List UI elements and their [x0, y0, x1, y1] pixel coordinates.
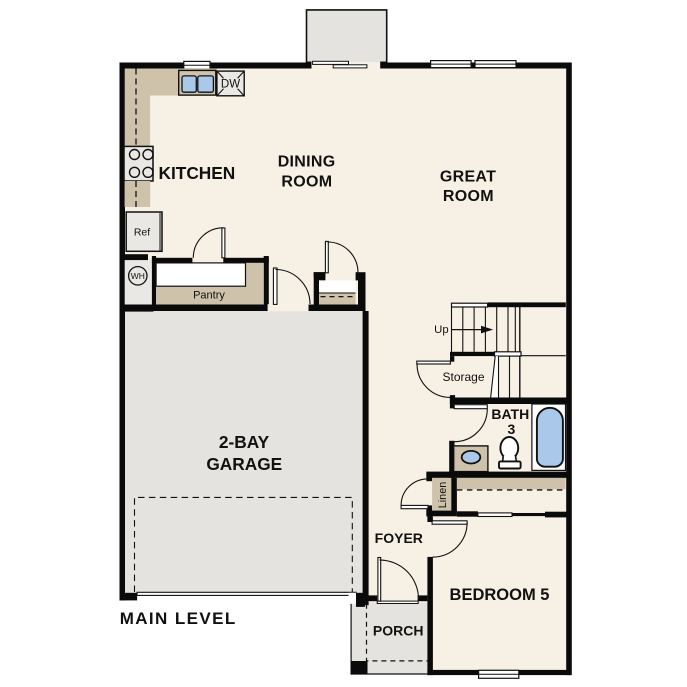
svg-text:Pantry: Pantry [193, 290, 225, 302]
svg-text:3: 3 [508, 421, 516, 437]
svg-text:PORCH: PORCH [373, 623, 424, 639]
svg-text:ROOM: ROOM [443, 188, 494, 205]
svg-text:MAIN LEVEL: MAIN LEVEL [120, 609, 237, 628]
svg-text:DW: DW [221, 79, 240, 91]
svg-text:KITCHEN: KITCHEN [158, 163, 235, 183]
svg-text:WH: WH [131, 271, 145, 281]
svg-text:Ref: Ref [134, 227, 150, 239]
svg-text:ROOM: ROOM [281, 173, 332, 190]
svg-text:GARAGE: GARAGE [206, 454, 282, 474]
svg-text:BEDROOM 5: BEDROOM 5 [450, 586, 550, 604]
svg-text:Linen: Linen [437, 482, 449, 508]
svg-text:2-BAY: 2-BAY [219, 432, 270, 452]
svg-text:Up: Up [434, 324, 448, 336]
svg-text:Storage: Storage [442, 370, 484, 384]
svg-text:BATH: BATH [491, 406, 529, 422]
svg-text:GREAT: GREAT [440, 168, 496, 185]
svg-text:FOYER: FOYER [375, 530, 423, 546]
svg-text:DINING: DINING [278, 153, 336, 170]
